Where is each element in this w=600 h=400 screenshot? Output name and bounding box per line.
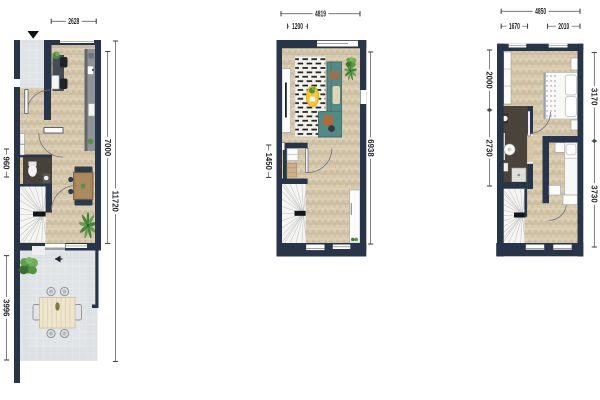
svg-text:1200: 1200 (292, 23, 303, 31)
svg-text:4819: 4819 (315, 11, 326, 19)
svg-text:3730: 3730 (590, 185, 599, 203)
svg-text:3170: 3170 (590, 88, 599, 106)
svg-text:11720: 11720 (111, 191, 120, 213)
svg-text:7000: 7000 (103, 139, 112, 157)
svg-text:6938: 6938 (366, 139, 375, 157)
svg-text:1670: 1670 (509, 23, 520, 31)
svg-text:960: 960 (2, 156, 11, 170)
svg-text:1450: 1450 (264, 153, 273, 171)
svg-text:3996: 3996 (2, 299, 11, 317)
svg-text:2730: 2730 (485, 139, 494, 157)
svg-text:4850: 4850 (535, 8, 546, 16)
svg-text:2000: 2000 (485, 71, 494, 89)
svg-text:2010: 2010 (558, 23, 569, 31)
svg-text:2628: 2628 (68, 18, 79, 26)
